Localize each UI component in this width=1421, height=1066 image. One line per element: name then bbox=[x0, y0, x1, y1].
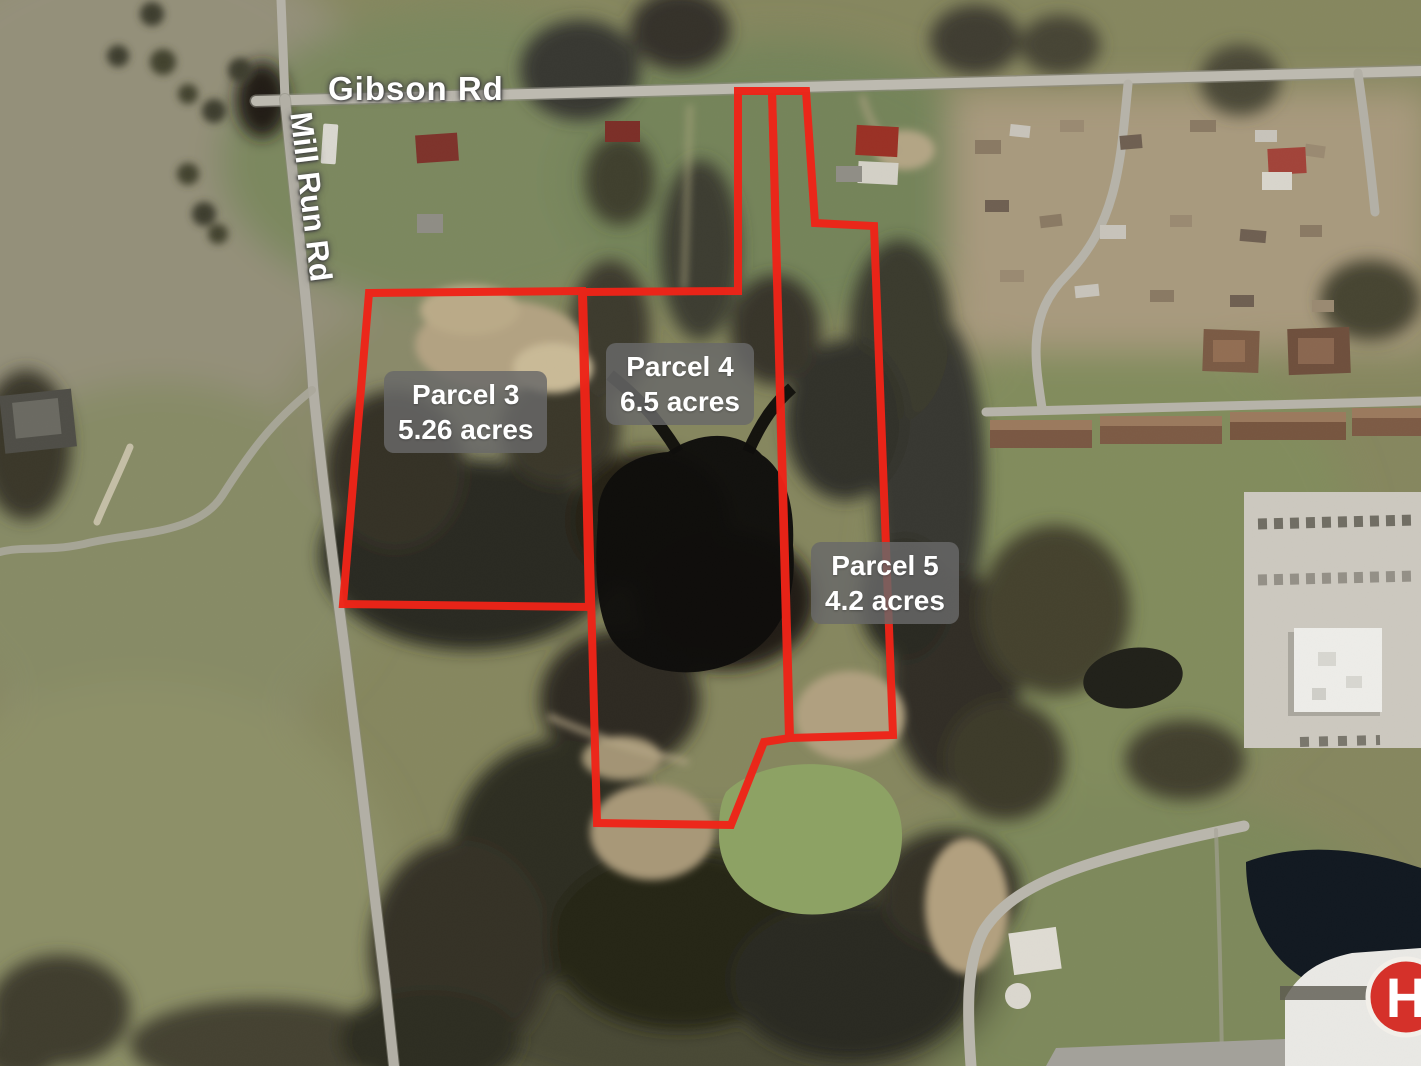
satellite-imagery: H bbox=[0, 0, 1421, 1066]
parcel-5-acreage: 4.2 acres bbox=[825, 583, 945, 618]
aerial-map: H Gibson Rd Mill Run Rd Parcel 3 5.26 ac… bbox=[0, 0, 1421, 1066]
road-label-gibson: Gibson Rd bbox=[328, 70, 504, 108]
parcel-3-name: Parcel 3 bbox=[398, 377, 533, 412]
parcel-5-label: Parcel 5 4.2 acres bbox=[811, 542, 959, 624]
parcel-3-label: Parcel 3 5.26 acres bbox=[384, 371, 547, 453]
parcel-4-acreage: 6.5 acres bbox=[620, 384, 740, 419]
parcel-3-acreage: 5.26 acres bbox=[398, 412, 533, 447]
parcel-4-label: Parcel 4 6.5 acres bbox=[606, 343, 754, 425]
hospital-logo-letter: H bbox=[1386, 966, 1421, 1029]
parcel-4-name: Parcel 4 bbox=[620, 349, 740, 384]
photo-grain bbox=[0, 0, 1421, 1066]
hospital-logo: H bbox=[1368, 959, 1421, 1035]
parcel-5-name: Parcel 5 bbox=[825, 548, 945, 583]
